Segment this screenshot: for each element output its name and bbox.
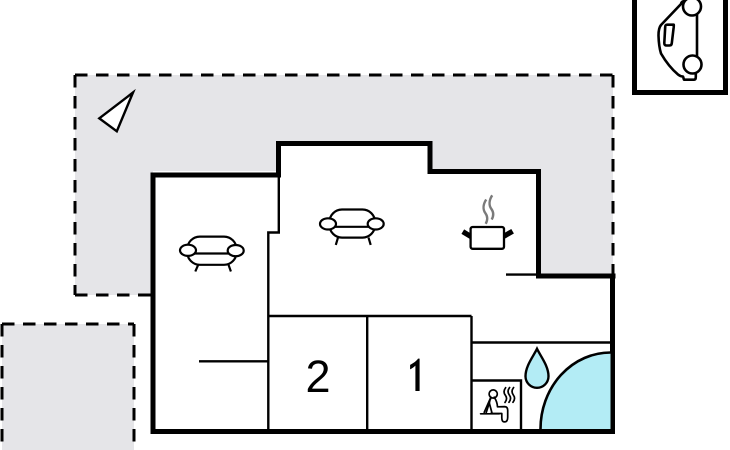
svg-text:2: 2 bbox=[305, 351, 330, 402]
